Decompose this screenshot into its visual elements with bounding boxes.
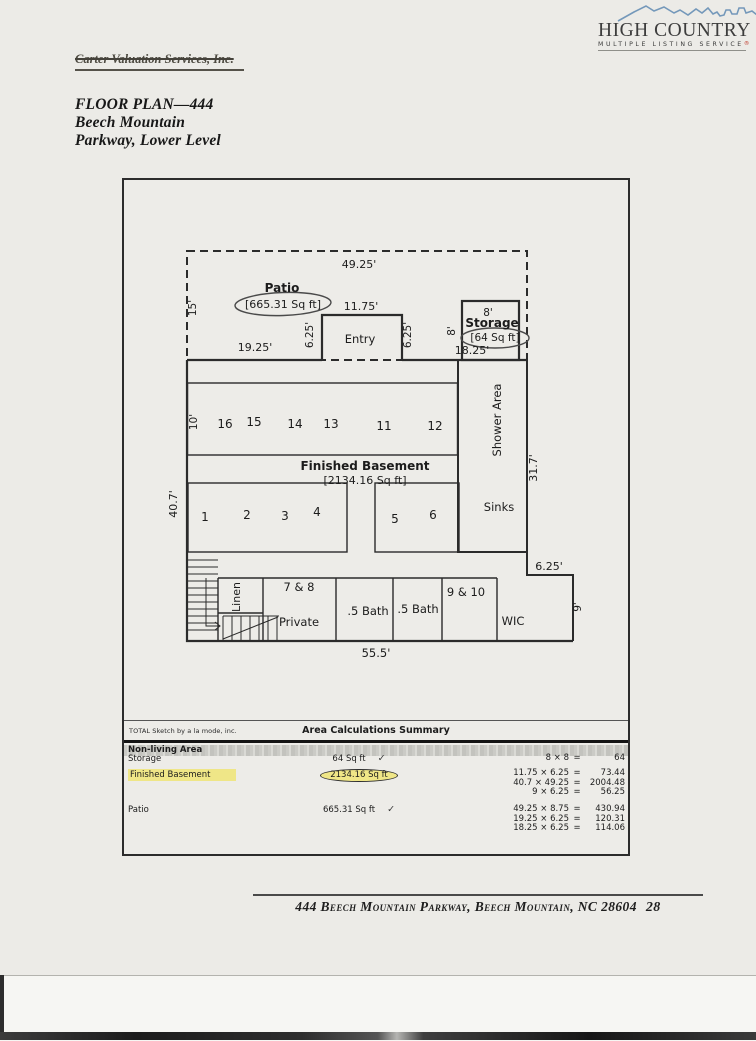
dim-6-25-left: 6.25' [304,322,316,348]
room-16: 16 [217,417,232,431]
patio-sqft: [665.31 Sq ft] [245,298,321,311]
floor-plan-drawing: 49.25' Patio [665.31 Sq ft] 15' 19.25' 6… [124,180,628,720]
page-title-line1: FLOOR PLAN—444 [75,96,221,114]
page-title-line2: Beech Mountain [75,114,221,132]
calc-expression: 18.25 × 6.25 [477,824,569,834]
equals-sign: = [569,754,585,764]
room-3: 3 [281,509,289,523]
row-value: 665.31 Sq ft✓ [274,805,444,815]
page-number: 28 [646,900,661,915]
calc-column: 49.25 × 8.75=430.94 19.25 × 6.25=120.31 … [477,805,625,834]
room-4: 4 [313,505,321,519]
equals-sign: = [569,824,585,834]
logo-title: HIGH COUNTRY [598,22,754,40]
room-2: 2 [243,508,251,522]
mls-logo: HIGH COUNTRY MULTIPLE LISTING SERVICE® [598,2,754,51]
scan-left-edge [0,975,4,1040]
room-11: 11 [376,419,391,433]
registered-mark: ® [744,41,750,47]
page-title: FLOOR PLAN—444 Beech Mountain Parkway, L… [75,96,221,150]
half-bath-2-label: .5 Bath [397,602,438,616]
dim-15: 15' [187,300,199,316]
scanned-floor-plan-page: { "logo": { "name": "HIGH COUNTRY", "tag… [0,0,756,1040]
row-value: 64 Sq ft✓ [274,754,444,764]
equals-sign: = [569,788,585,798]
calc-column: 8 × 8=64 [477,754,625,764]
calc-line: 18.25 × 6.25=114.06 [477,824,625,834]
checkmark: ✓ [387,804,395,815]
storage-label: Storage [465,316,518,330]
room-1: 1 [201,510,209,524]
area-value: 665.31 Sq ft [323,805,375,815]
entry-label: Entry [345,332,376,346]
row-label: Patio [128,805,149,815]
dim-49-25: 49.25' [342,258,377,271]
dim-6-25-right: 6.25' [402,322,414,348]
footer-address: 444 Beech Mountain Parkway, Beech Mounta… [295,899,637,914]
calc-line: 9 × 6.25=56.25 [477,788,625,798]
area-calculations-table: TOTAL Sketch by a la mode, inc. Area Cal… [124,720,628,756]
patio-label: Patio [265,281,300,295]
area-value-circled: 2134.16 Sq ft [320,769,398,782]
dim-19-25: 19.25' [238,341,273,354]
dim-6-25-bottom-right: 6.25' [535,560,563,573]
dim-55-5: 55.5' [362,646,391,660]
finished-basement-sqft: [2134.16 Sq ft] [323,474,406,487]
shower-area-label: Shower Area [490,384,504,457]
dim-10: 10' [188,414,200,430]
room-7-8-label: 7 & 8 [284,580,315,594]
mountain-ridge-icon [616,2,756,22]
calc-column: 11.75 × 6.25=73.44 40.7 × 49.25=2004.48 … [477,769,625,798]
calc-expression: 9 × 6.25 [477,788,569,798]
logo-tagline-text: MULTIPLE LISTING SERVICE [598,41,744,48]
page-title-line3: Parkway, Lower Level [75,132,221,150]
calc-result: 114.06 [585,824,625,834]
dim-40-7: 40.7' [167,490,180,518]
storage-sqft: [64 Sq ft] [470,332,519,344]
sinks-label: Sinks [484,500,514,514]
room-13: 13 [323,417,338,431]
dim-31-7: 31.7' [527,454,540,482]
dim-11-75: 11.75' [344,300,379,313]
table-header: TOTAL Sketch by a la mode, inc. Area Cal… [124,720,628,743]
room-5: 5 [391,512,399,526]
linen-label: Linen [230,582,243,612]
room-15: 15 [246,415,261,429]
checkmark: ✓ [378,753,386,764]
footer-address-bar: 444 Beech Mountain Parkway, Beech Mounta… [253,894,703,916]
dim-9: 9' [572,602,584,612]
half-bath-1-label: .5 Bath [347,604,388,618]
sketch-border: 49.25' Patio [665.31 Sq ft] 15' 19.25' 6… [122,178,630,856]
row-value: 2134.16 Sq ft [274,769,444,782]
calc-expression: 8 × 8 [477,754,569,764]
room-14: 14 [287,417,302,431]
scan-bottom-bar [0,1032,756,1040]
calc-result: 56.25 [585,788,625,798]
table-title: Area Calculations Summary [124,725,628,736]
row-label-highlighted: Finished Basement [128,769,236,781]
room-6: 6 [429,508,437,522]
logo-tagline: MULTIPLE LISTING SERVICE® [598,41,746,51]
wic-label: WIC [502,614,525,628]
dim-8-left: 8' [446,326,458,336]
room-12: 12 [427,419,442,433]
room-9-10-label: 9 & 10 [447,585,485,599]
calc-line: 8 × 8=64 [477,754,625,764]
struck-company-name: Carter Valuation Services, Inc. [75,52,244,71]
area-value: 64 Sq ft [332,754,365,764]
dim-18-25: 18.25' [455,344,490,357]
private-label: Private [279,615,319,629]
row-label: Storage [128,754,161,764]
calc-result: 64 [585,754,625,764]
finished-basement-label: Finished Basement [300,459,429,473]
